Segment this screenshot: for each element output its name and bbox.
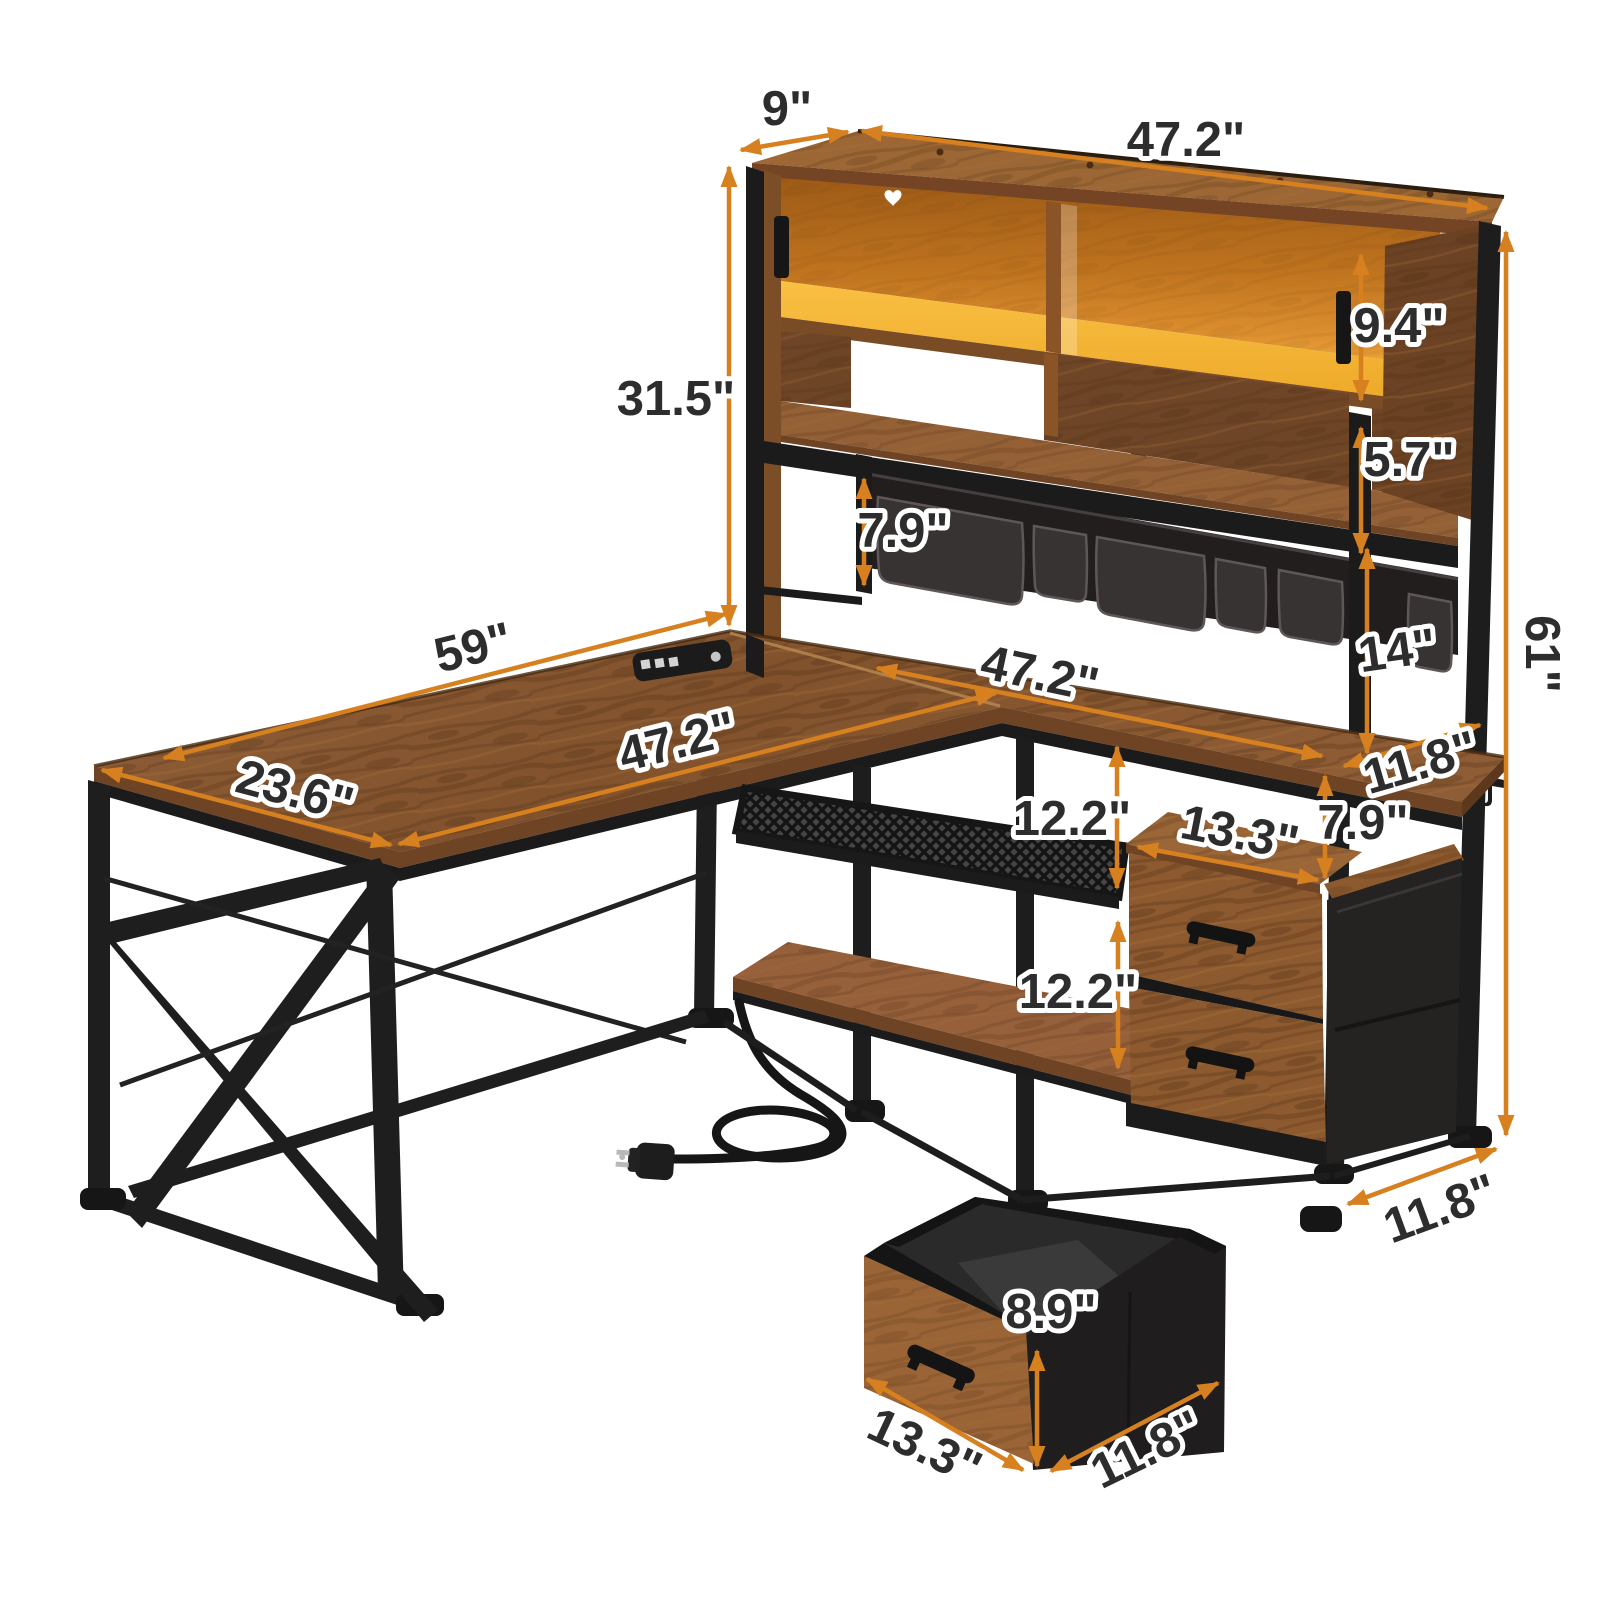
svg-text:12.2": 12.2" <box>1019 965 1138 1019</box>
svg-text:14": 14" <box>1355 619 1440 683</box>
svg-text:5.7": 5.7" <box>1363 433 1454 487</box>
svg-text:61": 61" <box>1515 615 1569 693</box>
svg-text:7.9": 7.9" <box>1317 796 1408 850</box>
svg-text:9.4": 9.4" <box>1353 299 1444 353</box>
svg-text:31.5": 31.5" <box>617 372 736 426</box>
svg-text:7.9": 7.9" <box>857 504 948 558</box>
svg-text:8.9": 8.9" <box>1005 1285 1096 1339</box>
svg-text:9": 9" <box>762 82 812 136</box>
svg-text:12.2": 12.2" <box>1013 792 1132 846</box>
svg-text:47.2": 47.2" <box>1127 113 1246 167</box>
